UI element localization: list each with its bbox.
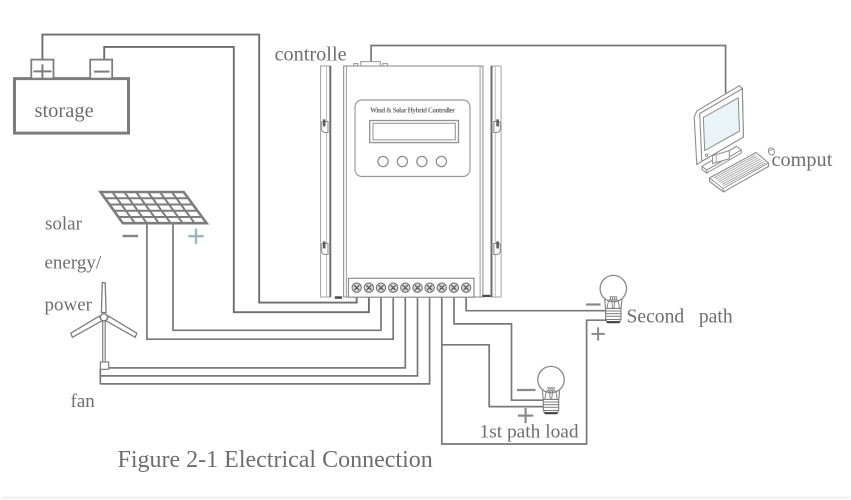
svg-text:controlle: controlle xyxy=(275,44,347,66)
svg-text:Wind & Solar Hybrid Controller: Wind & Solar Hybrid Controller xyxy=(370,107,455,114)
svg-text:comput: comput xyxy=(772,149,833,171)
svg-text:storage: storage xyxy=(35,100,94,122)
svg-text:solar: solar xyxy=(45,214,83,235)
svg-text:energy/: energy/ xyxy=(45,253,102,274)
svg-text:power: power xyxy=(45,295,93,316)
svg-text:Figure 2-1 Electrical Connecti: Figure 2-1 Electrical Connection xyxy=(118,447,433,473)
svg-text:Second path: Second path xyxy=(627,307,733,328)
svg-text:fan: fan xyxy=(71,391,96,412)
svg-text:1st path load: 1st path load xyxy=(480,422,579,443)
